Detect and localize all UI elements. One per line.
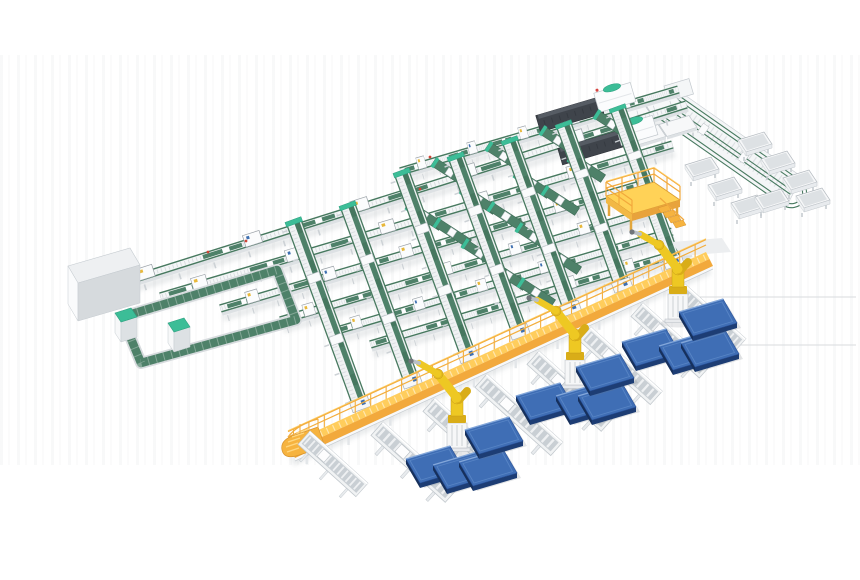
sensor-dot <box>419 188 422 191</box>
factory-render <box>0 0 860 580</box>
control-cabinet <box>168 318 190 352</box>
sensor-dot <box>207 251 210 254</box>
collection-bin <box>685 157 719 186</box>
control-cabinet <box>115 308 137 342</box>
sensor-dot <box>245 240 248 243</box>
collection-bin <box>796 188 830 217</box>
sortation-line-scene <box>0 0 860 580</box>
control-cabinets <box>115 308 190 352</box>
sensor-dot <box>429 156 432 159</box>
collection-bin <box>755 189 789 218</box>
